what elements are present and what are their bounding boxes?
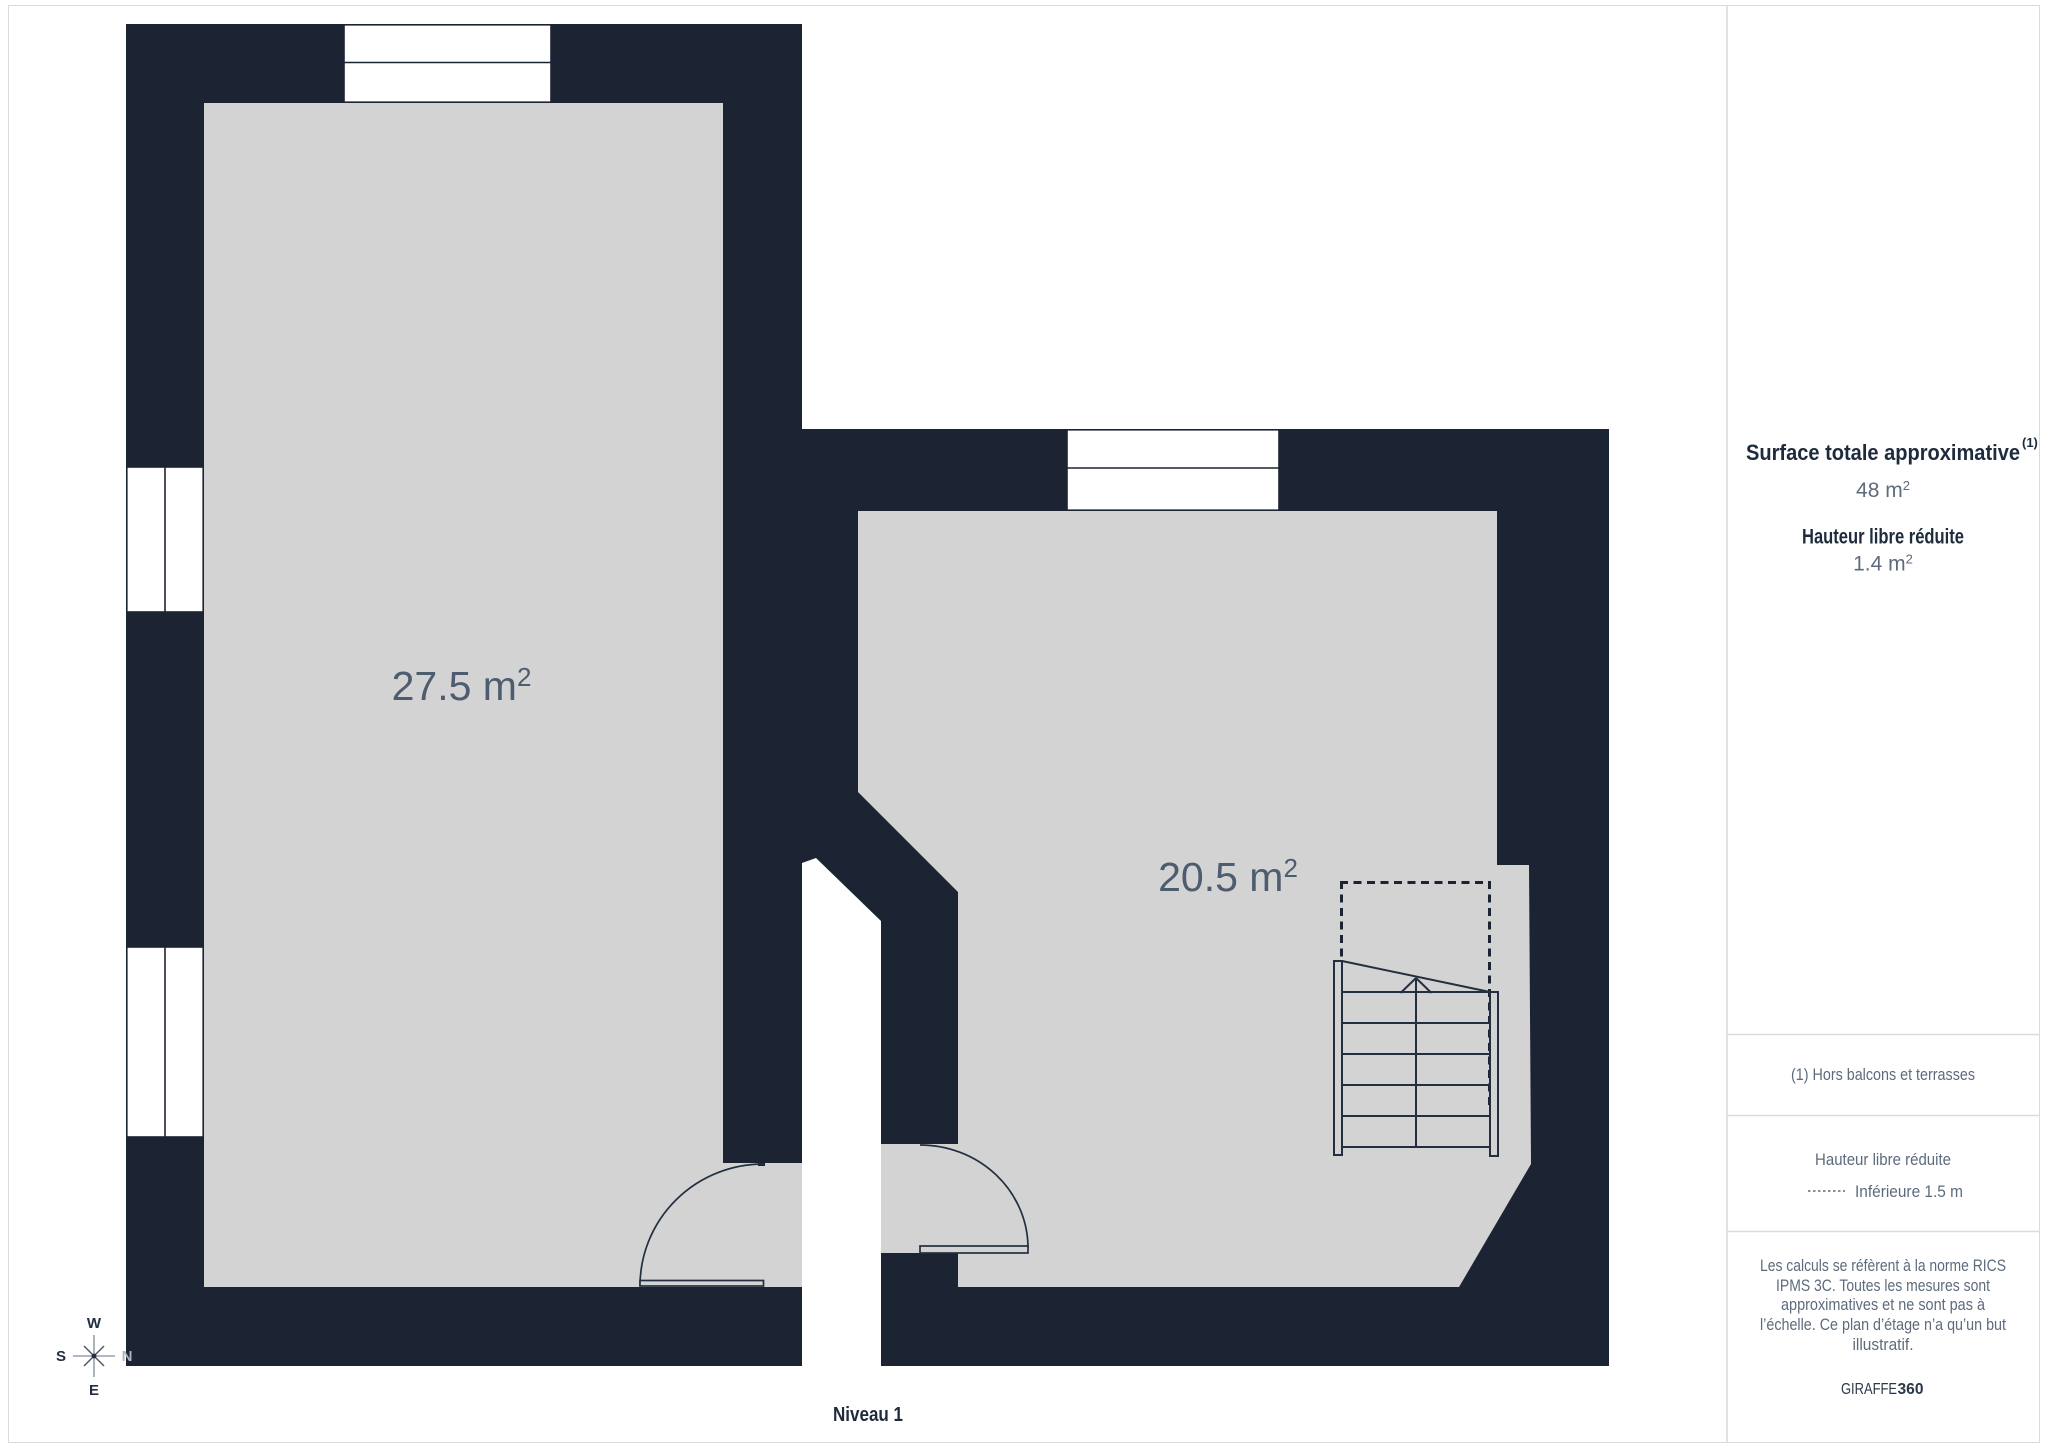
- svg-text:E: E: [89, 1382, 99, 1399]
- svg-text:360: 360: [1898, 1381, 1924, 1398]
- svg-text:illustratif.: illustratif.: [1853, 1335, 1914, 1354]
- svg-text:Hauteur libre réduite: Hauteur libre réduite: [1802, 526, 1964, 549]
- svg-text:27.5 m2: 27.5 m2: [392, 662, 532, 709]
- svg-text:Les calculs se réfèrent à la n: Les calculs se réfèrent à la norme RICS: [1760, 1256, 2006, 1275]
- svg-text:Surface totale approximative: Surface totale approximative: [1746, 440, 2020, 465]
- svg-text:W: W: [87, 1315, 102, 1332]
- svg-text:l’échelle. Ce plan d’étage n’a: l’échelle. Ce plan d’étage n’a qu’un but: [1760, 1315, 2006, 1334]
- svg-text:20.5 m2: 20.5 m2: [1158, 853, 1298, 900]
- svg-text:(1): (1): [2022, 435, 2038, 450]
- svg-text:IPMS 3C. Toutes les mesures so: IPMS 3C. Toutes les mesures sont: [1776, 1276, 1990, 1295]
- svg-text:1.4 m2: 1.4 m2: [1853, 552, 1913, 576]
- svg-text:approximatives et ne sont pas: approximatives et ne sont pas à: [1781, 1295, 1985, 1314]
- svg-text:48 m2: 48 m2: [1856, 478, 1910, 502]
- svg-text:Inférieure 1.5 m: Inférieure 1.5 m: [1855, 1182, 1963, 1201]
- svg-text:Hauteur libre réduite: Hauteur libre réduite: [1815, 1150, 1951, 1169]
- svg-text:N: N: [122, 1348, 133, 1365]
- svg-text:Niveau 1: Niveau 1: [833, 1404, 903, 1426]
- svg-text:GIRAFFE: GIRAFFE: [1841, 1381, 1897, 1398]
- svg-text:S: S: [56, 1348, 66, 1365]
- svg-text:(1) Hors balcons et terrasses: (1) Hors balcons et terrasses: [1791, 1065, 1975, 1084]
